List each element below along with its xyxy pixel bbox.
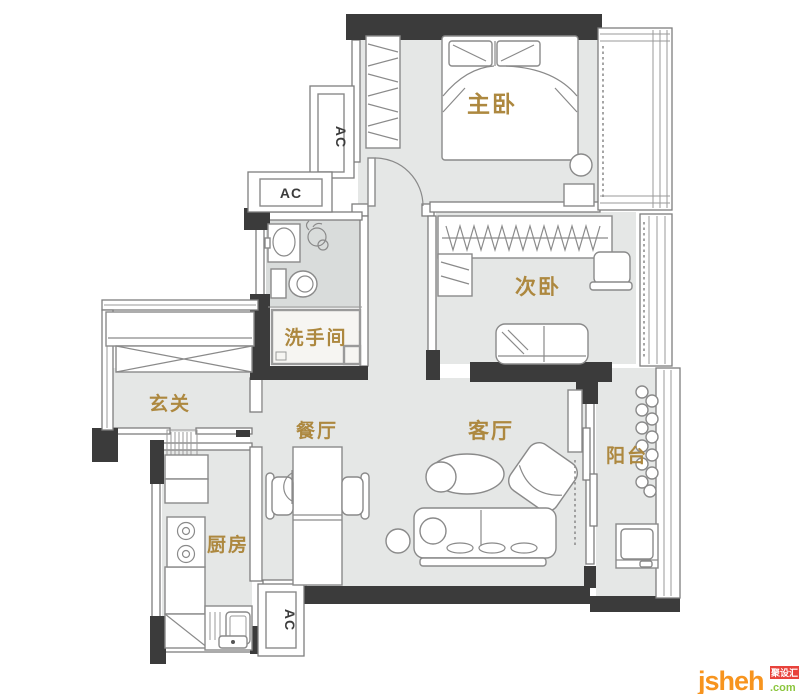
kitchen-sink [205, 606, 252, 650]
room-label-master-bedroom: 主卧 [467, 91, 517, 117]
site-watermark: jsheh 聚设汇 .com [697, 666, 799, 694]
room-label-balcony: 阳台 [606, 444, 648, 467]
bedside-lamp [570, 154, 592, 176]
master-wardrobe [366, 36, 400, 148]
room-label-second-bedroom: 次卧 [515, 275, 561, 299]
room-label-living: 客厅 [468, 419, 514, 443]
ac-label-top: AC [333, 126, 349, 148]
ac-platform-top: AC [310, 86, 354, 178]
nightstand [564, 184, 594, 206]
ac-label-middle: AC [280, 185, 302, 201]
sofa-pillow [420, 518, 446, 544]
bathroom-sink [265, 224, 300, 262]
second-bedroom-bay-window [640, 214, 672, 366]
fridge [165, 455, 208, 503]
kitchen-counter [165, 567, 205, 614]
living-sofa [414, 508, 556, 566]
entry-bottomleft-corner-wall [92, 428, 118, 462]
second-bedroom-bottom-wall [470, 362, 612, 382]
second-bedroom-desk [438, 254, 472, 296]
corner-cabinet [165, 614, 208, 648]
second-bedroom-chair [590, 252, 632, 290]
floor-plan-drawing: AC AC AC [0, 0, 800, 694]
entry-cabinet [106, 312, 254, 372]
entry-corner-tick-wall [236, 430, 250, 437]
logo-tld-text: .com [770, 682, 796, 694]
second-bedroom-left-wall [428, 216, 436, 352]
sofa-base [420, 558, 546, 566]
master-bay-window [598, 28, 672, 210]
living-bottom-wall [300, 586, 590, 604]
ac-label-bottom: AC [282, 609, 298, 631]
logo-badge-text: 聚设汇 [770, 667, 798, 678]
washing-machine [616, 524, 658, 568]
balcony-door-stub-wall [584, 566, 596, 588]
bathroom-top-wall [266, 212, 362, 220]
room-label-dining: 餐厅 [296, 419, 338, 442]
dining-table [293, 447, 342, 585]
round-stool [386, 529, 410, 553]
kitchen-dining-wall-lower [250, 447, 262, 581]
door-leaf [368, 158, 375, 206]
dining-chair-right [342, 473, 369, 519]
second-bedroom-wardrobe [438, 216, 612, 258]
room-label-kitchen: 厨房 [207, 533, 249, 556]
second-bedroom-sofa [496, 324, 588, 364]
kitchen-top-wall [160, 443, 252, 450]
floor-plan-page: AC AC AC [0, 0, 800, 694]
entry-bottom-wall-left [112, 428, 170, 434]
stove [167, 517, 205, 567]
second-bedroom-door-stub-wall [426, 350, 440, 380]
dining-chair-left [266, 473, 293, 519]
kitchen-bottomleft-corner-wall [150, 616, 166, 664]
kitchen-dining-wall-upper [250, 378, 262, 412]
corridor-floor [364, 208, 430, 380]
bathroom-bottom-wall [250, 366, 368, 380]
kitchen-left-wall [152, 482, 160, 618]
room-label-entry: 玄关 [149, 392, 191, 415]
faucet-knob [231, 640, 235, 644]
room-label-bathroom: 洗手间 [284, 326, 347, 349]
kitchen-topleft-corner-wall [150, 440, 164, 484]
bathroom-right-wall [360, 216, 368, 366]
ac-platform-bottom: AC [258, 584, 304, 656]
logo-brand-text: jsheh [697, 666, 764, 694]
toilet [271, 269, 317, 298]
ac-platform-middle: AC [248, 172, 332, 212]
balcony-window [656, 368, 680, 598]
